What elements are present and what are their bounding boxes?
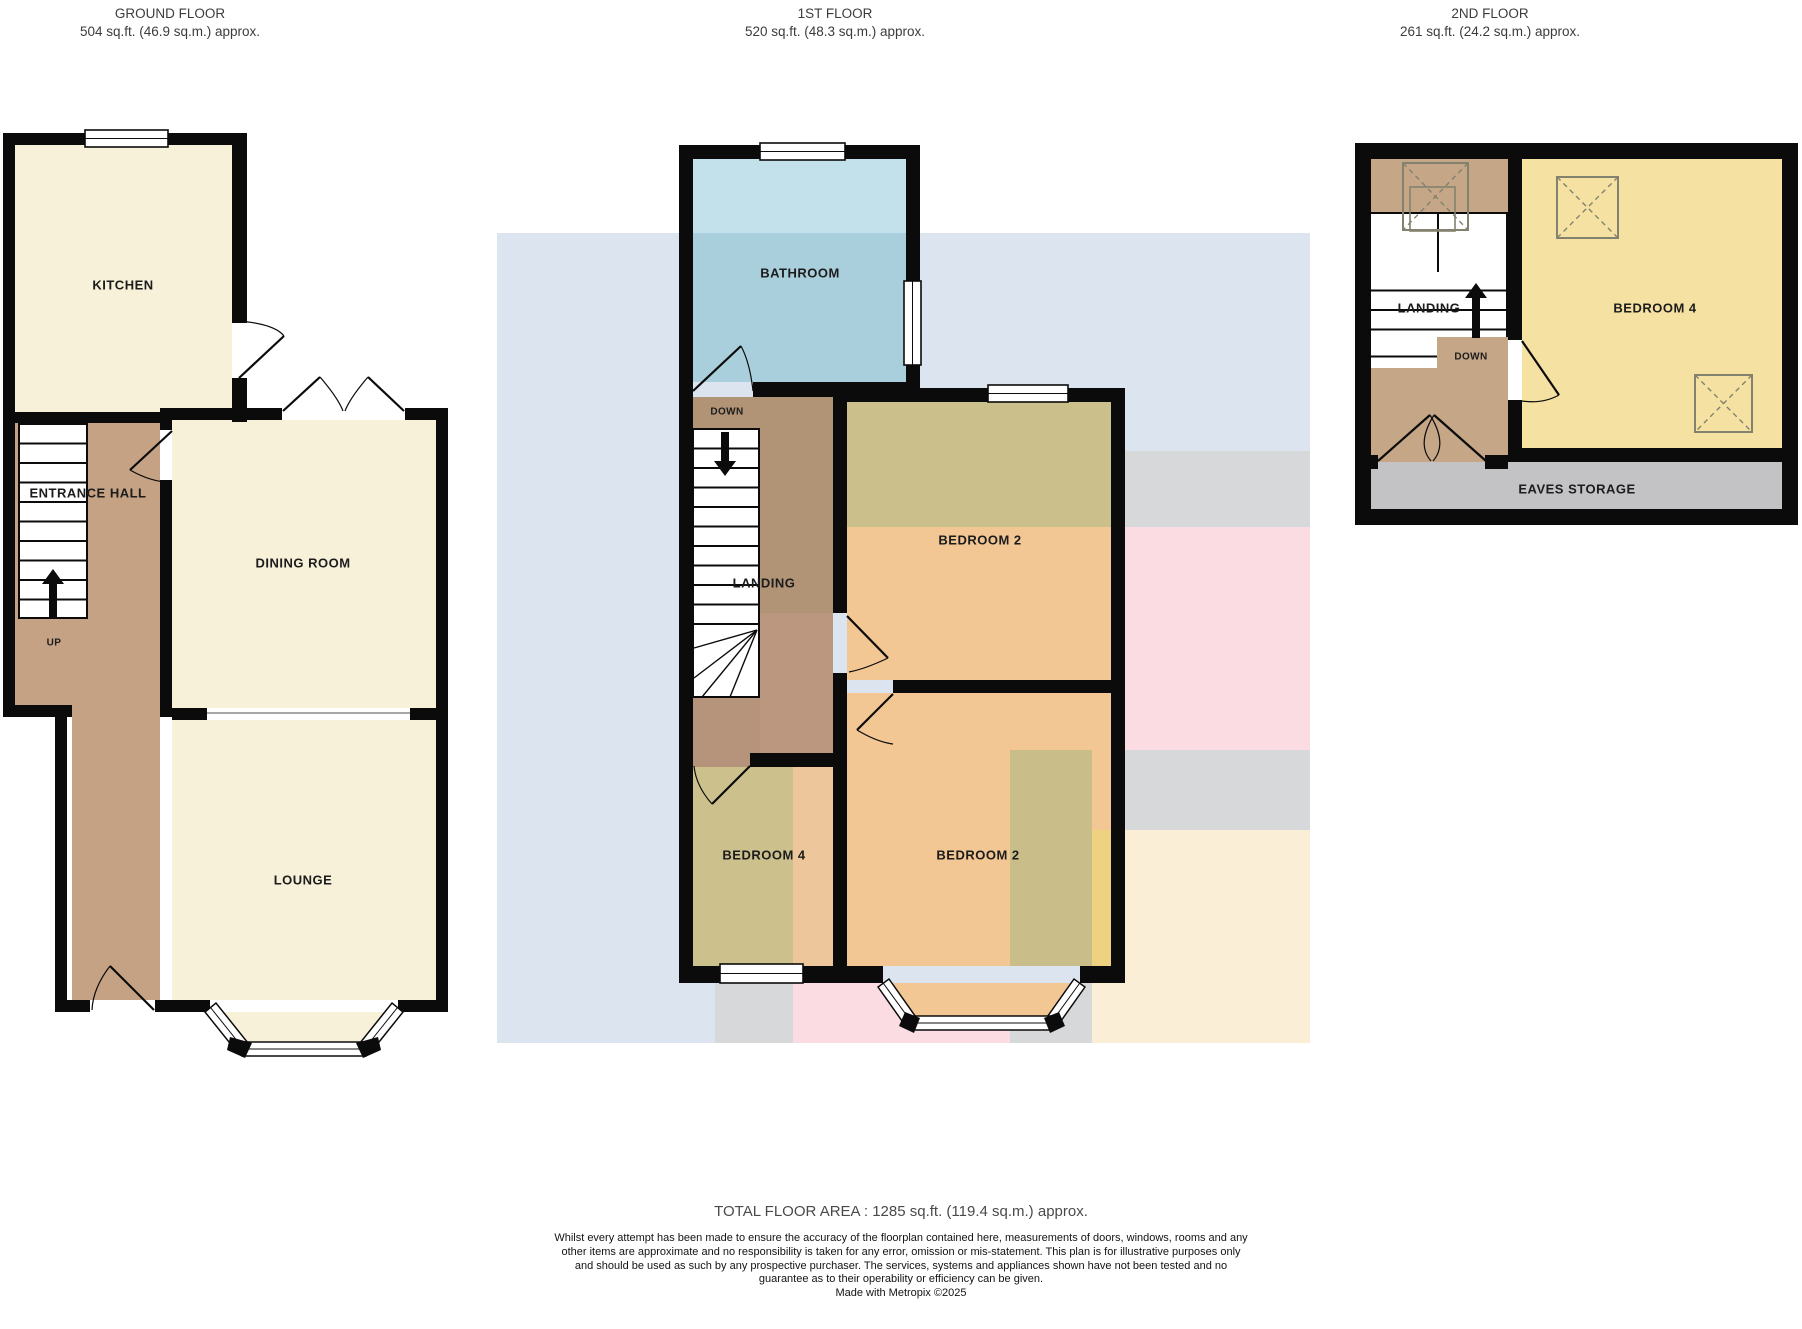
kitchen-window <box>85 130 168 147</box>
second-floor-header: 2ND FLOOR 261 sq.ft. (24.2 sq.m.) approx… <box>1310 5 1670 41</box>
ground-floor-header: GROUND FLOOR 504 sq.ft. (46.9 sq.m.) app… <box>0 5 350 41</box>
up-arrow-head <box>1465 283 1487 298</box>
eaves-storage-label: EAVES STORAGE <box>1518 482 1635 497</box>
winder-stairs-lines <box>694 630 757 697</box>
metropix-credit: Made with Metropix ©2025 <box>551 1287 1251 1301</box>
down-label: DOWN <box>710 407 743 418</box>
plan-detail-overlay <box>0 0 1802 1329</box>
down-arrow-head <box>714 461 736 476</box>
first-floor-title: 1ST FLOOR <box>655 5 1015 23</box>
bedroom2-bottom-label: BEDROOM 2 <box>936 848 1019 863</box>
ground-floor-area: 504 sq.ft. (46.9 sq.m.) approx. <box>0 23 350 41</box>
bathroom-label: BATHROOM <box>760 266 840 281</box>
up-arrow <box>49 584 57 617</box>
bedroom2-top-label: BEDROOM 2 <box>938 533 1021 548</box>
down-arrow <box>721 432 729 461</box>
first-floor-area: 520 sq.ft. (48.3 sq.m.) approx. <box>655 23 1015 41</box>
second-down-label: DOWN <box>1454 352 1487 363</box>
total-floor-area: TOTAL FLOOR AREA : 1285 sq.ft. (119.4 sq… <box>551 1203 1251 1220</box>
bedroom2-bay-window <box>878 979 1085 1033</box>
lounge-bay-window <box>205 1003 403 1058</box>
second-floor-title: 2ND FLOOR <box>1310 5 1670 23</box>
up-arrow <box>1472 298 1480 338</box>
bedroom4-first-label: BEDROOM 4 <box>722 848 805 863</box>
floorplan-canvas: GROUND FLOOR 504 sq.ft. (46.9 sq.m.) app… <box>0 0 1802 1329</box>
lounge-label: LOUNGE <box>274 873 333 888</box>
landing-label: LANDING <box>733 576 796 591</box>
entrance-hall-label: ENTRANCE HALL <box>30 486 147 501</box>
first-floor-header: 1ST FLOOR 520 sq.ft. (48.3 sq.m.) approx… <box>655 5 1015 41</box>
second-floor-area: 261 sq.ft. (24.2 sq.m.) approx. <box>1310 23 1670 41</box>
second-bedroom4-label: BEDROOM 4 <box>1613 301 1696 316</box>
kitchen-label: KITCHEN <box>92 278 153 293</box>
dining-room-label: DINING ROOM <box>255 556 350 571</box>
skylight-icon <box>1403 163 1752 432</box>
up-arrow-head <box>42 569 64 584</box>
second-landing-label: LANDING <box>1398 301 1461 316</box>
door-arc <box>92 321 410 1010</box>
disclaimer-text: Whilst every attempt has been made to en… <box>551 1232 1251 1287</box>
footer: TOTAL FLOOR AREA : 1285 sq.ft. (119.4 sq… <box>551 1203 1251 1301</box>
ground-floor-title: GROUND FLOOR <box>0 5 350 23</box>
up-label: UP <box>47 638 62 649</box>
